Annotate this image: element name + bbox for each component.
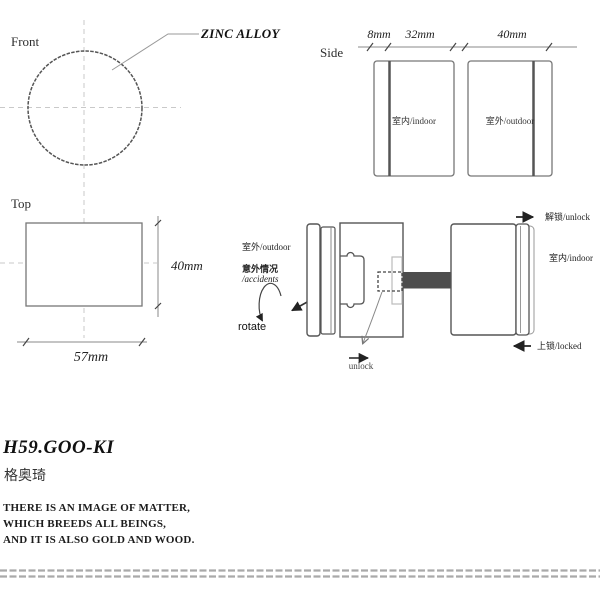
side-dim-40mm: 40mm bbox=[490, 27, 534, 42]
zinc-alloy-leader-line bbox=[112, 34, 199, 70]
op-locked-state-label: 上锁/locked bbox=[537, 339, 582, 352]
top-view-label: Top bbox=[11, 196, 31, 212]
top-knob-rect bbox=[26, 223, 142, 306]
side-view-label: Side bbox=[320, 45, 343, 61]
rotate-direction-arrow bbox=[259, 283, 281, 321]
brand-chinese-name: 格奥琦 bbox=[4, 465, 46, 485]
tagline-line-3: AND IT IS ALSO GOLD AND WOOD. bbox=[3, 532, 195, 548]
op-accident-label-en: /accidents bbox=[242, 274, 279, 284]
product-model-title: H59.GOO-KI bbox=[3, 437, 114, 459]
op-outdoor-rose-plate bbox=[321, 227, 335, 334]
top-dim-57mm: 57mm bbox=[65, 350, 117, 366]
top-dim-40mm: 40mm bbox=[171, 258, 203, 274]
side-outdoor-label: 室外/outdoor bbox=[468, 114, 552, 127]
side-dim-8mm: 8mm bbox=[362, 27, 396, 42]
op-spindle-bar bbox=[403, 272, 451, 289]
rotate-label: rotate bbox=[238, 321, 266, 333]
side-indoor-label: 室内/indoor bbox=[374, 114, 454, 127]
technical-drawing-sheet: Front ZINC ALLOY Side 8mm 32mm 40mm 室内/i… bbox=[0, 0, 600, 600]
op-indoor-rose-plate bbox=[516, 224, 529, 335]
front-view-label: Front bbox=[11, 34, 39, 50]
unlock-action-label: unlock bbox=[345, 361, 377, 371]
op-indoor-label: 室内/indoor bbox=[549, 251, 593, 264]
zinc-alloy-callout: ZINC ALLOY bbox=[201, 26, 280, 42]
side-dim-32mm: 32mm bbox=[398, 27, 442, 42]
tagline-line-2: WHICH BREEDS ALL BEINGS, bbox=[3, 516, 166, 532]
op-unlock-state-label: 解锁/unlock bbox=[545, 210, 590, 223]
op-outdoor-label: 室外/outdoor bbox=[242, 240, 291, 253]
tagline-line-1: THERE IS AN IMAGE OF MATTER, bbox=[3, 500, 190, 516]
op-outdoor-knob bbox=[307, 224, 320, 336]
op-indoor-knob-body bbox=[451, 224, 516, 335]
